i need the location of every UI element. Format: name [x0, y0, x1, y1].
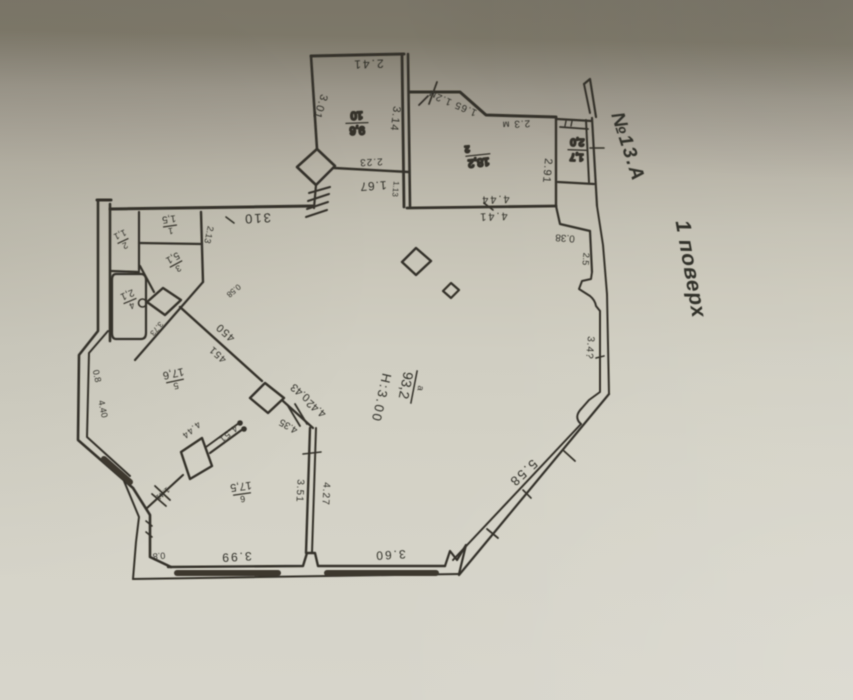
svg-text:0.8: 0.8: [91, 369, 103, 383]
svg-text:H:3.00: H:3.00: [369, 372, 395, 424]
svg-text:2: 2: [464, 144, 470, 154]
svg-text:2.91: 2.91: [540, 158, 554, 184]
svg-text:а: а: [415, 385, 426, 392]
svg-text:5: 5: [173, 380, 180, 391]
svg-text:3.60: 3.60: [374, 547, 406, 563]
svg-text:10: 10: [350, 109, 363, 121]
svg-text:2.41: 2.41: [352, 56, 384, 71]
svg-text:0.8: 0.8: [152, 550, 165, 561]
svg-text:310: 310: [243, 210, 271, 226]
svg-text:1 поверх: 1 поверх: [671, 218, 711, 320]
svg-text:1,5: 1,5: [161, 212, 177, 225]
svg-text:4.27: 4.27: [319, 482, 331, 506]
svg-text:4.44: 4.44: [480, 192, 510, 205]
svg-text:2.3 м: 2.3 м: [501, 117, 530, 129]
svg-text:2,0: 2,0: [570, 136, 585, 147]
svg-text:4.44: 4.44: [180, 419, 203, 441]
svg-text:3.4?: 3.4?: [583, 336, 596, 360]
svg-text:1.67: 1.67: [359, 178, 387, 194]
svg-text:18,2: 18,2: [467, 155, 490, 169]
svg-text:2.5: 2.5: [580, 252, 591, 265]
svg-text:№13.А: №13.А: [606, 110, 648, 185]
svg-text:0.38: 0.38: [555, 231, 576, 243]
svg-text:9,6: 9,6: [349, 124, 365, 137]
svg-text:17,5: 17,5: [229, 479, 252, 494]
svg-text:93,2: 93,2: [396, 371, 417, 401]
svg-text:6: 6: [240, 494, 246, 505]
svg-text:4.40: 4.40: [96, 399, 109, 418]
svg-text:17,6: 17,6: [162, 365, 185, 381]
svg-text:3.14: 3.14: [388, 106, 403, 133]
svg-text:2.13: 2.13: [202, 225, 215, 244]
svg-text:451: 451: [207, 343, 229, 364]
svg-text:0.58: 0.58: [224, 282, 242, 299]
svg-text:1,7: 1,7: [569, 151, 584, 162]
svg-text:4.41: 4.41: [478, 209, 508, 222]
svg-text:3.51: 3.51: [293, 479, 305, 503]
svg-text:3.99: 3.99: [220, 549, 252, 565]
svg-text:1: 1: [168, 226, 174, 237]
svg-text:3.73: 3.73: [148, 320, 165, 338]
svg-text:0.43: 0.43: [289, 381, 313, 404]
svg-text:1.13: 1.13: [390, 181, 400, 198]
svg-text:4.51: 4.51: [217, 423, 240, 445]
svg-text:2.23: 2.23: [359, 155, 383, 167]
